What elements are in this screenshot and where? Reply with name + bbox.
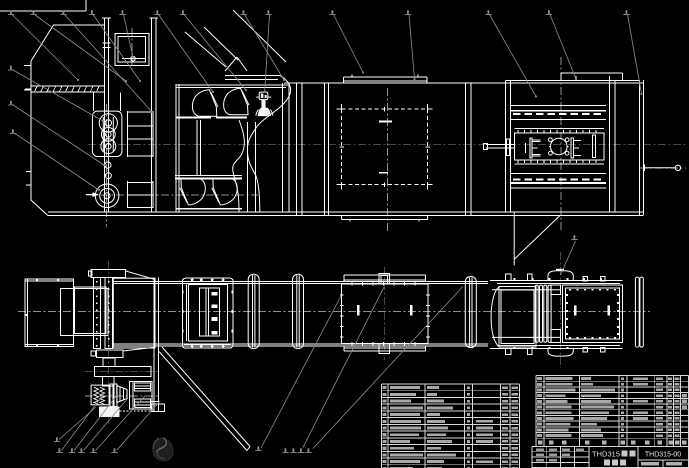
svg-text:THD315-00: THD315-00 <box>645 452 681 459</box>
svg-text:THD315: THD315 <box>592 450 620 459</box>
